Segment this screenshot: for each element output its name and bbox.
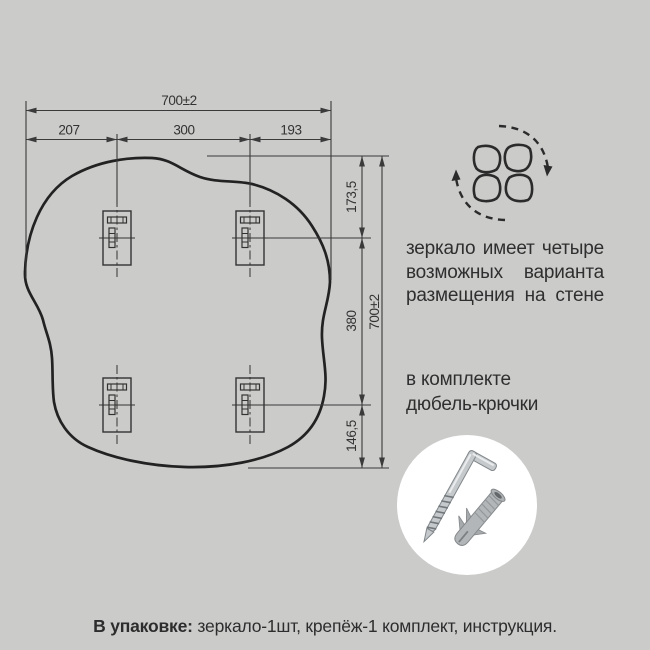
placement-note-line1: зеркало имеет четыре	[406, 238, 604, 259]
dim-top-offset-label: 173,5	[344, 181, 359, 213]
fasteners-photo	[397, 435, 537, 575]
mounting-plate-top-right	[232, 198, 268, 278]
mounting-plate-top-left	[99, 198, 135, 278]
placement-note-line3: размещения на стене	[406, 285, 604, 306]
mounting-plate-bottom-right	[232, 365, 268, 445]
dim-bottom-offset-label: 146,5	[344, 420, 359, 452]
dim-center-span-label: 300	[173, 123, 194, 138]
dim-right-offset-label: 193	[280, 123, 301, 138]
included-note-line1: в комплекте	[406, 369, 511, 390]
placement-note: зеркало имеет четыре возможных варианта …	[406, 237, 604, 308]
included-note: в комплекте дюбель-крючки	[406, 367, 538, 417]
placement-note-line2: возможных варианта	[406, 262, 604, 283]
dim-total-height-label: 700±2	[367, 294, 382, 329]
package-caption: В упаковке: зеркало-1шт, крепёж-1 компле…	[0, 616, 650, 637]
package-caption-label: В упаковке:	[93, 616, 193, 636]
package-caption-contents: зеркало-1шт, крепёж-1 комплект, инструкц…	[193, 616, 557, 636]
rotation-icon	[452, 126, 553, 220]
included-note-line2: дюбель-крючки	[406, 394, 538, 415]
dim-middle-span-label: 380	[344, 310, 359, 331]
dimension-lines	[26, 101, 389, 468]
rotation-arrow-bottom-head	[452, 170, 461, 182]
mirror-outline	[25, 158, 330, 467]
dim-left-offset-label: 207	[58, 123, 79, 138]
technical-drawing: 700±2 207 300 193 173,5 380 146,5 700±2	[0, 0, 650, 650]
dim-total-width-label: 700±2	[161, 93, 196, 108]
rotation-arrow-top-head	[544, 165, 553, 177]
mounting-plate-bottom-left	[99, 365, 135, 445]
